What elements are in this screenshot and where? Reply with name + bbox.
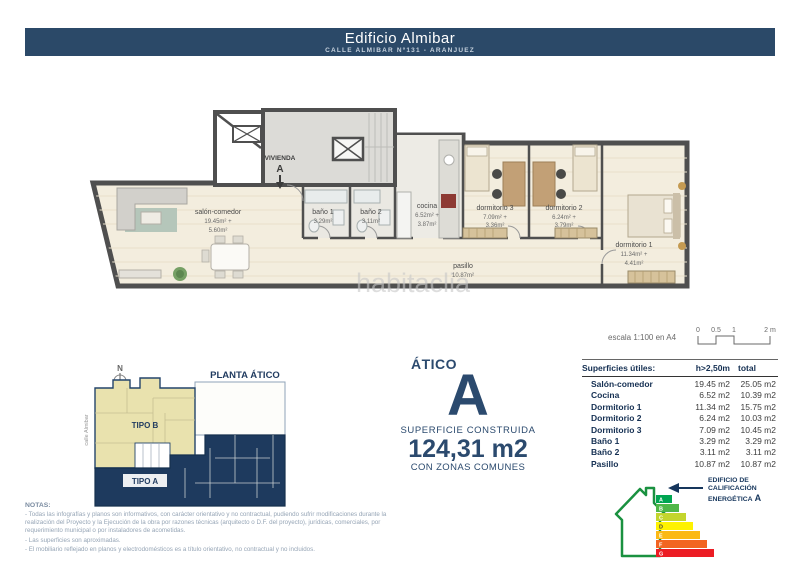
row-h250: 11.34 m2: [676, 402, 730, 413]
vivienda-letter: A: [276, 164, 283, 175]
room-label-cocina: cocina: [417, 203, 437, 210]
room-area: 3.79m²: [555, 223, 574, 229]
annex-rooms: [215, 112, 263, 185]
room-label-dorm2: dormitorio 2: [546, 205, 583, 212]
row-total: 15.75 m2: [730, 402, 776, 413]
room-label-pasillo: pasillo: [453, 263, 473, 270]
table-row: Cocina 6.52 m2 10.39 m2: [582, 390, 778, 401]
energy-rating-letter: B: [659, 507, 663, 513]
room-label-banio1: baño 1: [312, 209, 334, 216]
table-row: Dormitorio 3 7.09 m2 10.45 m2: [582, 425, 778, 436]
unit-summary: ÁTICO A SUPERFICIE CONSTRUIDA 124,31 m2 …: [383, 356, 553, 473]
tipo-a-label: TIPO A: [132, 477, 159, 486]
row-total: 3.11 m2: [730, 447, 776, 458]
table-header: Superficies útiles: h>2,50m total: [582, 359, 778, 377]
scale-bar: 0 0.5 1 2 m: [692, 322, 776, 352]
north-letter: N: [117, 364, 123, 373]
row-h250: 6.24 m2: [676, 413, 730, 424]
energy-letter: A: [755, 493, 762, 503]
energy-rating-letter: D: [659, 525, 663, 531]
adjacent-plot: [195, 382, 285, 435]
room-area: 7.09m² +: [483, 215, 507, 221]
row-name: Salón-comedor: [582, 379, 676, 390]
row-total: 25.05 m2: [730, 379, 776, 390]
elevator-icon: [333, 138, 363, 160]
table-row: Baño 2 3.11 m2 3.11 m2: [582, 447, 778, 458]
building-title: Edificio Almibar: [25, 28, 775, 47]
room-area: 5.60m²: [209, 228, 228, 234]
table-row: Salón-comedor 19.45 m2 25.05 m2: [582, 379, 778, 390]
table-header-name: Superficies útiles:: [582, 363, 676, 373]
scale-label: escala 1:100 en A4: [608, 333, 676, 342]
energy-label-line2: CALIFICACIÓN: [708, 485, 790, 493]
row-h250: 3.29 m2: [676, 436, 730, 447]
energy-label-word: ENERGÉTICA: [708, 496, 753, 503]
row-name: Baño 1: [582, 436, 676, 447]
table-body: Salón-comedor 19.45 m2 25.05 m2 Cocina 6…: [582, 379, 778, 470]
scale-tick: 1: [732, 327, 736, 334]
room-area: 3.29m²: [314, 219, 333, 225]
notes-title: NOTAS:: [25, 502, 417, 509]
energy-house-icon: A B C D E F G: [616, 488, 714, 558]
header-bar: Edificio Almibar CALLE ALMIBAR Nº131 - A…: [25, 28, 775, 56]
room-label-salon: salón-comedor: [195, 209, 242, 216]
siteplan-title: PLANTA ÁTICO: [210, 370, 280, 381]
row-total: 10.45 m2: [730, 425, 776, 436]
surfaces-table: Superficies útiles: h>2,50m total Salón-…: [582, 359, 778, 470]
energy-rating-letter: C: [659, 516, 663, 522]
row-name: Cocina: [582, 390, 676, 401]
row-total: 10.87 m2: [730, 459, 776, 470]
room-label-banio2: baño 2: [360, 209, 382, 216]
common-zones-caption: CON ZONAS COMUNES: [383, 462, 553, 473]
row-name: Baño 2: [582, 447, 676, 458]
energy-bars: A B C D E F G: [656, 495, 714, 558]
room-area: 11.34m² +: [621, 252, 648, 258]
row-name: Dormitorio 2: [582, 413, 676, 424]
built-area-value: 124,31 m2: [383, 436, 553, 462]
energy-label-line1: EDIFICIO DE: [708, 477, 790, 485]
energy-label-line3: ENERGÉTICAA: [708, 493, 790, 504]
room-area: 6.52m² +: [415, 213, 439, 219]
row-h250: 10.87 m2: [676, 459, 730, 470]
energy-label: EDIFICIO DE CALIFICACIÓN ENERGÉTICAA: [708, 477, 790, 504]
row-h250: 3.11 m2: [676, 447, 730, 458]
room-label-dorm1: dormitorio 1: [616, 242, 653, 249]
floorplan-page: { "header": { "title": "Edificio Almibar…: [0, 0, 800, 565]
scale-tick: 0: [696, 327, 700, 334]
table-row: Dormitorio 2 6.24 m2 10.03 m2: [582, 413, 778, 424]
street-label: calle Almibar: [84, 414, 90, 445]
room-area: 3.87m²: [418, 222, 437, 228]
energy-rating-letter: G: [659, 552, 663, 558]
note-item: - Todas las infografías y planos son inf…: [25, 511, 417, 536]
row-h250: 6.52 m2: [676, 390, 730, 401]
table-row: Baño 1 3.29 m2 3.29 m2: [582, 436, 778, 447]
room-area: 6.24m² +: [552, 215, 576, 221]
siteplan-drawing: N PLANTA ÁTICO calle Almibar TIPO B TIPO…: [35, 358, 290, 515]
scale-tick: 0.5: [711, 327, 721, 334]
room-area: 19.45m² +: [204, 219, 232, 225]
room-area: 3.36m²: [486, 223, 505, 229]
row-name: Dormitorio 3: [582, 425, 676, 436]
row-name: Dormitorio 1: [582, 402, 676, 413]
floorplan-drawing: habitaclia VIVIENDA A salón-comedor 19.4…: [83, 100, 723, 315]
energy-arrow-icon: [668, 483, 703, 493]
room-area: 10.87m²: [452, 273, 474, 279]
note-item: - El mobiliario reflejado en planos y el…: [25, 546, 417, 554]
row-name: Pasillo: [582, 459, 676, 470]
siteplan-core: [135, 443, 170, 468]
table-header-total: total: [730, 363, 776, 373]
row-total: 3.29 m2: [730, 436, 776, 447]
tipo-b-label: TIPO B: [132, 421, 159, 430]
row-h250: 19.45 m2: [676, 379, 730, 390]
vivienda-label: VIVIENDA: [265, 155, 296, 162]
unit-letter: A: [383, 368, 553, 423]
energy-rating-letter: E: [659, 534, 663, 540]
table-row: Dormitorio 1 11.34 m2 15.75 m2: [582, 402, 778, 413]
scale-tick: 2 m: [764, 327, 776, 334]
table-row: Pasillo 10.87 m2 10.87 m2: [582, 459, 778, 470]
row-h250: 7.09 m2: [676, 425, 730, 436]
room-area: 4.41m²: [625, 261, 644, 267]
note-item: - Las superficies son aproximadas.: [25, 537, 417, 545]
notes-block: NOTAS: - Todas las infografías y planos …: [25, 502, 417, 555]
room-label-dorm3: dormitorio 3: [477, 205, 514, 212]
row-total: 10.39 m2: [730, 390, 776, 401]
row-total: 10.03 m2: [730, 413, 776, 424]
table-header-h250: h>2,50m: [676, 363, 730, 373]
energy-rating-letter: A: [659, 498, 663, 504]
room-area: 3.11m²: [362, 219, 380, 225]
building-address: CALLE ALMIBAR Nº131 - ARANJUEZ: [25, 47, 775, 54]
